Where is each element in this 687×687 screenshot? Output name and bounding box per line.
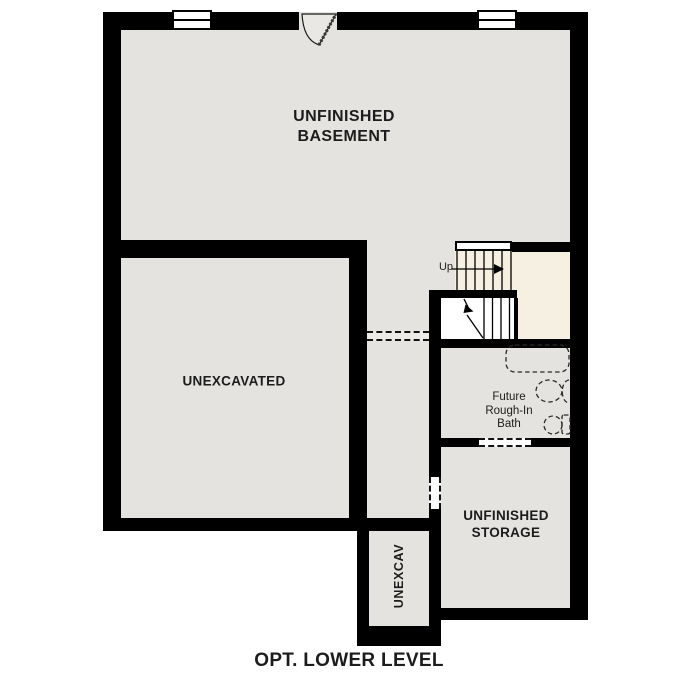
wall-stair-run-edge xyxy=(514,298,518,339)
window-symbol-right xyxy=(477,10,517,30)
wall-stair-left xyxy=(429,290,441,448)
wall-storage-bottom xyxy=(429,608,588,620)
wall-unexcavated-bottom xyxy=(103,518,441,531)
storage-label: UNFINISHED STORAGE xyxy=(463,507,549,541)
storage-side-opening xyxy=(429,477,441,509)
stair-top-landing xyxy=(455,241,512,251)
wall-unexcav-small-bottom xyxy=(357,626,441,646)
wall-stair-bath xyxy=(429,339,570,348)
stair-lower-run xyxy=(441,298,514,339)
wall-stair-mid xyxy=(429,290,517,298)
unexcavated-label: UNEXCAVATED xyxy=(182,374,285,389)
wall-left xyxy=(103,12,121,530)
wall-stair-top xyxy=(512,242,570,252)
wall-unexcavated-top xyxy=(103,240,367,258)
basement-label: UNFINISHED BASEMENT xyxy=(293,107,395,147)
bath-label: Future Rough-In Bath xyxy=(485,391,532,432)
floor-plan: UNFINISHED BASEMENT UNEXCAVATED Future R… xyxy=(0,0,687,687)
unexcav-small-label: UNEXCAV xyxy=(392,544,406,608)
bath-storage-opening xyxy=(479,438,531,447)
wall-unexcavated-right xyxy=(349,240,367,531)
wall-right xyxy=(570,12,588,620)
corridor-cased-opening xyxy=(367,331,429,341)
plan-title: OPT. LOWER LEVEL xyxy=(254,650,444,672)
stair-up-label: Up xyxy=(439,261,453,273)
window-symbol-left xyxy=(172,10,212,30)
entry-door-gap xyxy=(299,12,337,30)
